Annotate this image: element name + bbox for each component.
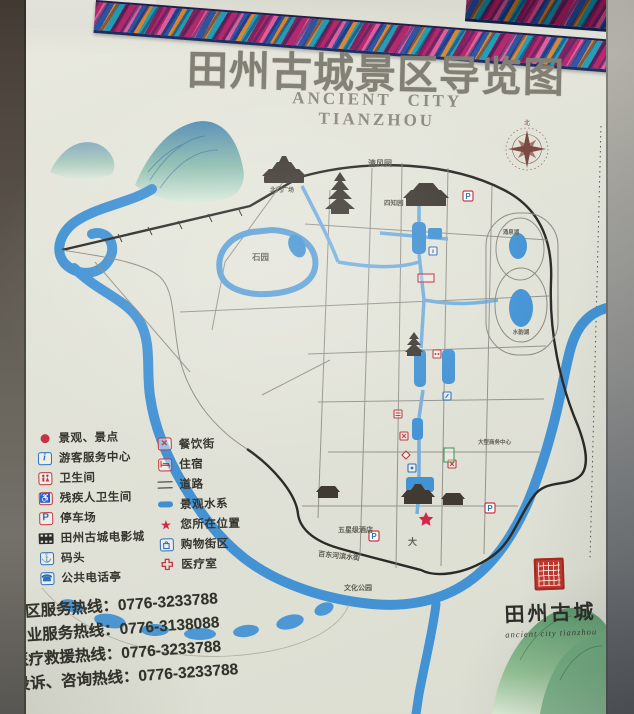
photo-of-map-sign: 北	[0, 0, 634, 714]
legend-item: ☎ 公共电话亭	[39, 566, 167, 589]
shopping-district-icon	[159, 537, 174, 551]
legend-label: 残疾人卫生间	[60, 488, 132, 506]
legend-label: 景观、景点	[58, 429, 118, 446]
map-label-yongquan-lake: 涌泉湖	[503, 228, 520, 236]
map-label-hotel: 五星级酒店	[338, 525, 373, 534]
wall-left-edge	[0, 0, 26, 714]
water-icon	[158, 497, 173, 511]
red-seal-stamp-icon	[534, 558, 565, 591]
svg-text:P: P	[487, 504, 493, 513]
mansion-building	[403, 183, 449, 206]
map-label-qingfengyuan: 清风园	[368, 158, 392, 168]
phone-booth-icon: ☎	[39, 571, 54, 585]
legend-label: 景观水系	[180, 495, 228, 512]
legend-item: i 游客服务中心	[37, 446, 165, 469]
legend-item: 医疗室	[159, 551, 309, 574]
legend-right-column: × 餐饮街 住宿 道路 景观水系 ★ 您所在位置 购物街区	[157, 431, 310, 574]
parking-icon: P	[38, 511, 53, 525]
scenic-spot-icon	[36, 431, 51, 445]
legend-item: 卫生间	[37, 466, 165, 489]
cinema-icon	[38, 531, 53, 545]
compass-north-label: 北	[524, 119, 530, 127]
accessible-toilet-icon: ♿	[38, 491, 53, 505]
legend-label: 购物街区	[181, 535, 229, 552]
lodging-icon	[157, 457, 172, 471]
map-border-dotted	[590, 126, 601, 560]
hotline-list: 景区服务热线：0776-3233788 物业服务热线：0776-3138088 …	[9, 584, 265, 697]
brand-name: 田州古城	[498, 595, 603, 628]
svg-text:P: P	[465, 192, 471, 201]
legend-label: 住宿	[179, 456, 203, 472]
legend-label: 公共电话亭	[61, 569, 121, 586]
map-label-riverside-street: 百东河滨水街	[318, 549, 361, 562]
legend-item: ♿ 残疾人卫生间	[38, 486, 166, 509]
legend-item: P 停车场	[38, 506, 166, 529]
legend-label: 道路	[179, 476, 203, 492]
your-location-marker	[419, 512, 433, 526]
dining-street-icon: ×	[157, 437, 172, 451]
road-icon	[157, 477, 172, 491]
wall-right-edge	[606, 0, 634, 714]
map-label-shiyuan: 石园	[251, 252, 269, 262]
map-label-sizhiyuan: 四知园	[384, 198, 404, 207]
toilet-icon	[37, 471, 52, 485]
visitor-center-icon: i	[37, 451, 52, 465]
legend-label: 游客服务中心	[59, 448, 131, 466]
legend-item: 景观、景点	[36, 426, 164, 449]
legend-label: 医疗室	[181, 555, 217, 572]
legend-label: 餐饮街	[179, 435, 215, 452]
sign-subtitle: ANCIENT CITY TIANZHOU	[232, 87, 523, 133]
legend-label: 卫生间	[59, 469, 95, 486]
map-label-shuiyun-lake: 水韵湖	[513, 328, 530, 336]
legend-left-column: 景观、景点 i 游客服务中心 卫生间 ♿ 残疾人卫生间 P 停车场 田州古城电影…	[36, 426, 167, 589]
north-gate-building	[262, 156, 306, 183]
legend-item: ⚓ 码头	[39, 546, 167, 569]
map-label-da-street: 大	[408, 536, 417, 547]
map-label-business-center: 大型商务中心	[478, 438, 512, 446]
legend-label: 码头	[61, 549, 85, 565]
legend-item: 田州古城电影城	[38, 526, 166, 549]
dock-icon: ⚓	[39, 551, 54, 565]
your-location-icon: ★	[158, 517, 173, 531]
legend-label: 田州古城电影城	[60, 528, 144, 546]
legend-label: 您所在位置	[180, 515, 240, 532]
legend-label: 停车场	[60, 509, 96, 526]
map-label-beimen-square: 北门广场	[270, 186, 294, 194]
map-label-culture-park: 文化公园	[344, 583, 372, 592]
brand-block: 田州古城 ancient city tianzhou	[497, 556, 604, 640]
medical-room-icon	[159, 557, 174, 571]
